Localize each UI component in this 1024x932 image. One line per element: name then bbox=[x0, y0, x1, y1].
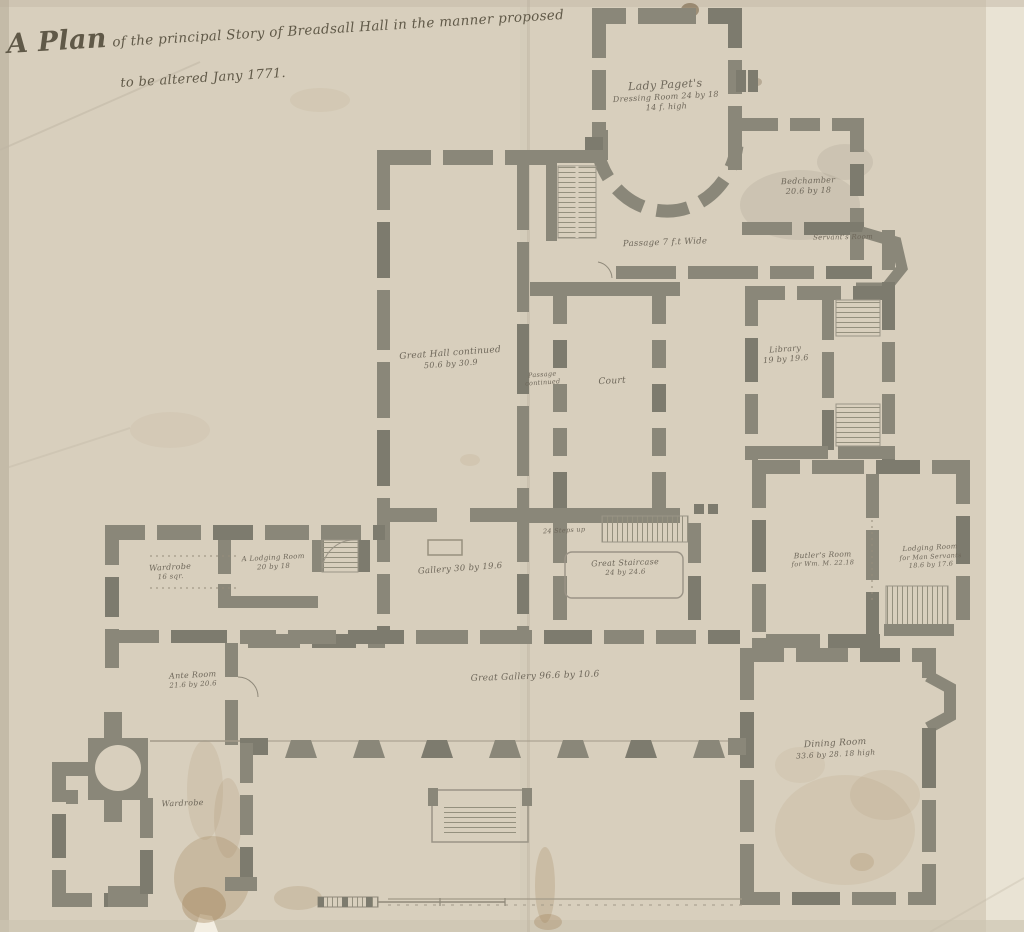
floor-plan-drawing bbox=[0, 0, 1024, 932]
document-sheet: A Plan of the principal Story of Breadsa… bbox=[0, 0, 1024, 932]
